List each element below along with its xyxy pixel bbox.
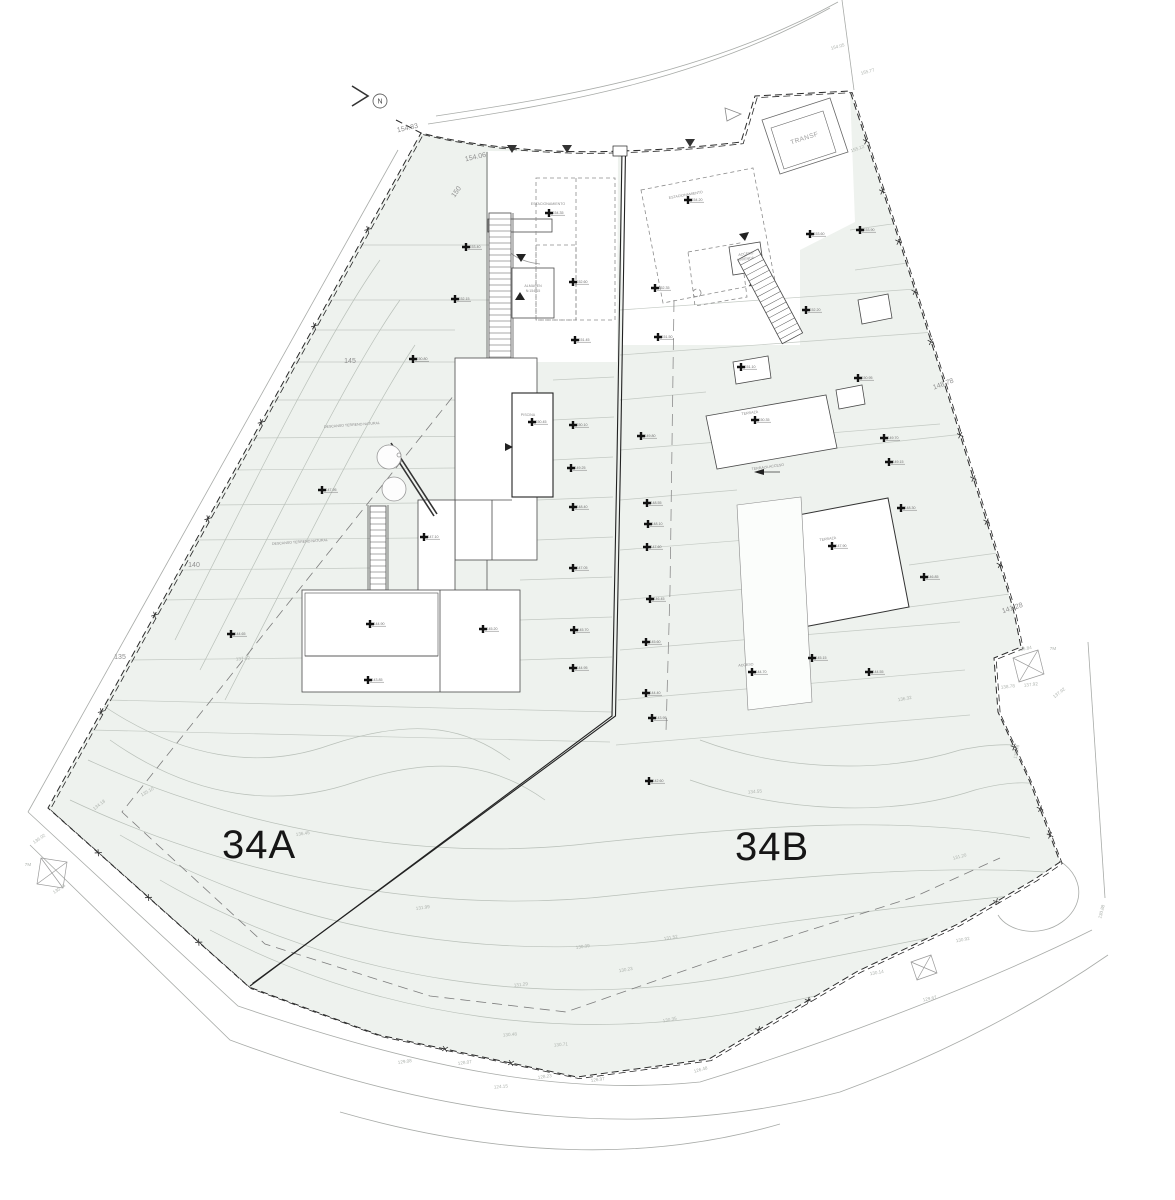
spot-elevation-value: 146.45 [654, 597, 665, 601]
spot-elevation-value: 153.60 [814, 232, 825, 236]
north-arrow: N [352, 86, 387, 108]
spot-elevation-value: 154.20 [692, 198, 703, 202]
road-bottom-far [340, 1112, 780, 1150]
spot-elevation-value: 145.15 [816, 656, 827, 660]
spot-elevation-value: 152.60 [577, 280, 588, 284]
contour-elevation-label: 129.08 [397, 1058, 412, 1065]
boundary-elevation-label: 154.83 [396, 123, 419, 135]
spot-elevation-value: 150.95 [862, 376, 873, 380]
contour-elevation-label: 130.14 [869, 969, 884, 976]
spot-elevation-value: 145.20 [487, 627, 498, 631]
spot-elevation-value: 149.70 [888, 436, 899, 440]
spot-elevation-value: 147.05 [577, 566, 588, 570]
spot-elevation-value: 144.55 [873, 670, 884, 674]
contour-elevation-label: 130.88 [1097, 904, 1106, 919]
spot-elevation-value: 145.70 [578, 628, 589, 632]
spot-elevation-value: 150.80 [417, 357, 428, 361]
site-plan-canvas: TRANSF N 154.83154.06150145140135148.781… [0, 0, 1175, 1200]
spot-elevation-value: 149.25 [575, 466, 586, 470]
spot-elevation-value: 151.50 [662, 335, 673, 339]
north-label: N [377, 99, 382, 106]
boundary-elevation-label: 140 [188, 562, 200, 569]
monument-x-box [1013, 650, 1044, 682]
parcel-34b-label: 34B [735, 825, 809, 869]
boundary-elevation-label: 135 [114, 654, 126, 661]
almacen-box [512, 268, 554, 318]
contour-elevation-label: 126.48 [693, 1065, 708, 1074]
spot-elevation-value: 149.15 [893, 460, 904, 464]
contour-elevation-label: 7M [1050, 646, 1057, 651]
spot-elevation-value: 153.40 [470, 245, 481, 249]
spot-elevation-value: 144.90 [374, 622, 385, 626]
spot-elevation-value: 152.35 [659, 286, 670, 290]
site-plan-svg: TRANSF N 154.83154.06150145140135148.781… [0, 0, 1175, 1200]
contour-elevation-label: 128.23 [537, 1073, 552, 1080]
spot-elevation-value: 147.90 [836, 544, 847, 548]
contour-elevation-label: 136.02 [32, 832, 47, 844]
road-right-edge [1088, 642, 1105, 898]
contour-elevation-label: 155.77 [860, 67, 875, 76]
spot-elevation-value: 150.10 [577, 423, 588, 427]
spot-elevation-value: 147.60 [651, 545, 662, 549]
spot-elevation-value: 144.70 [756, 670, 767, 674]
site-area [48, 91, 1060, 1077]
parcel-34a-label: 34A [222, 823, 296, 867]
spot-elevation-value: 145.60 [650, 640, 661, 644]
contour-elevation-label: 130.92 [955, 936, 970, 943]
spot-elevation-value: 148.10 [652, 522, 663, 526]
spot-elevation-value: 144.95 [577, 666, 588, 670]
contour-elevation-label: 137.92 [1024, 681, 1039, 687]
contour-elevation-label: 124.15 [494, 1083, 509, 1089]
spot-elevation-value: 142.60 [653, 779, 664, 783]
building-annotation-label: ALMACEN [524, 284, 542, 288]
spot-elevation-value: 150.35 [759, 418, 770, 422]
stairs-34a-lower [368, 505, 388, 592]
spot-elevation-value: 144.40 [650, 691, 661, 695]
building-34b-access-strip [737, 497, 812, 710]
contour-elevation-label: 154.05 [830, 42, 845, 51]
spot-elevation-value: 154.35 [553, 211, 564, 215]
contour-elevation-label: 135.46 [52, 882, 67, 894]
spot-elevation-value: 152.20 [810, 308, 821, 312]
spot-elevation-value: 151.45 [579, 338, 590, 342]
boundary-elevation-label: 145 [344, 358, 356, 365]
spot-elevation-value: 151.10 [745, 365, 756, 369]
contour-elevation-label: 128.07 [457, 1059, 472, 1066]
building-annotation-label: PISCINA [521, 413, 536, 417]
contour-elevation-label: 7M [25, 862, 32, 867]
contour-elevation-label: 135.78 [1013, 744, 1021, 759]
building-annotation-label: ESTACIONAMIENTO [531, 202, 566, 206]
contour-elevation-label: 126.97 [590, 1076, 605, 1083]
contour-elevation-label: 137.92 [1052, 686, 1067, 699]
spot-elevation-value: 149.80 [645, 434, 656, 438]
spot-elevation-value: 152.15 [459, 297, 470, 301]
spot-elevation-value: 143.85 [372, 678, 383, 682]
spot-elevation-value: 148.30 [905, 506, 916, 510]
spot-elevation-value: 143.95 [656, 716, 667, 720]
tree [377, 445, 401, 469]
building-annotation-label: N:154.15 [526, 289, 541, 293]
spot-elevation-value: 146.85 [928, 575, 939, 579]
spot-elevation-value: 147.95 [326, 488, 337, 492]
spot-elevation-value: 144.65 [235, 632, 246, 636]
contour-elevation-label: 138.78 [1001, 683, 1016, 689]
monument-x-box [911, 955, 937, 980]
spot-elevation-value: 153.90 [864, 228, 875, 232]
pool-34a [512, 393, 553, 497]
spot-elevation-value: 150.45 [536, 420, 547, 424]
spot-elevation-value: 148.40 [577, 505, 588, 509]
tree [382, 477, 406, 501]
spot-elevation-value: 148.55 [651, 501, 662, 505]
north-chevron-icon [352, 86, 368, 106]
spot-elevation-value: 147.10 [428, 535, 439, 539]
